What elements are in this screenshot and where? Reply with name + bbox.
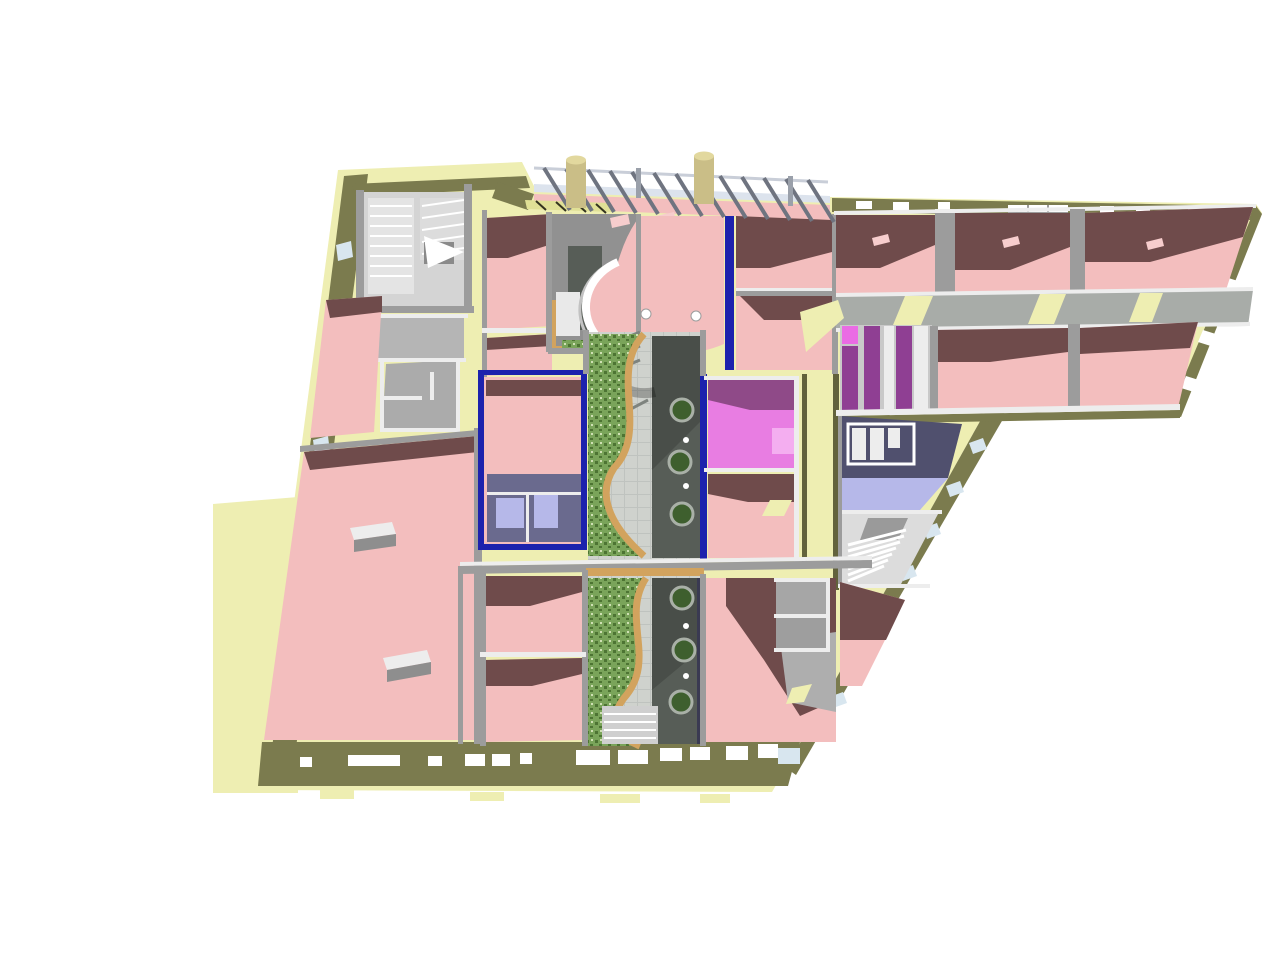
wall xyxy=(458,566,463,744)
wall-top xyxy=(935,209,955,213)
window xyxy=(492,754,510,766)
white-tile-floor xyxy=(556,292,580,336)
wall-top xyxy=(736,288,832,291)
window xyxy=(893,202,909,210)
wall xyxy=(480,570,486,746)
window xyxy=(938,202,950,210)
chimney xyxy=(694,156,714,204)
wall-top xyxy=(456,360,460,430)
floorplan-svg xyxy=(0,0,1280,960)
blue-framed-room-shadow xyxy=(486,380,582,396)
window xyxy=(465,754,485,766)
window xyxy=(690,747,710,760)
window-grid xyxy=(726,746,748,760)
stall-stripe xyxy=(842,346,858,410)
sidewalk-tab xyxy=(700,794,730,803)
round-planter xyxy=(671,587,693,609)
bathroom-partition xyxy=(526,492,529,542)
bathroom-partition xyxy=(487,492,581,495)
blue-wall xyxy=(478,372,484,548)
stall-stripe-bright xyxy=(842,326,858,344)
chimney-top xyxy=(694,152,714,161)
bathroom-fixture xyxy=(534,494,558,528)
wall xyxy=(583,330,589,374)
partition-wall xyxy=(1070,209,1085,293)
magenta-room-light xyxy=(772,428,794,454)
sidewalk-tab xyxy=(470,792,504,801)
blue-wall xyxy=(478,544,586,550)
door-frame xyxy=(552,300,556,348)
window xyxy=(660,748,682,761)
blue-wall-west xyxy=(581,372,587,550)
light-dot xyxy=(683,437,689,443)
small-gray-room xyxy=(776,580,828,614)
partition-wall xyxy=(935,211,955,293)
wall xyxy=(736,291,832,296)
floorplan-rendering xyxy=(0,0,1280,960)
window-grid xyxy=(576,750,610,765)
shelf-unit xyxy=(888,428,900,448)
stall-stripe xyxy=(864,326,880,410)
chimney-top xyxy=(566,156,586,165)
small-gray-room xyxy=(776,618,828,648)
wall xyxy=(582,570,588,746)
stall-stripe xyxy=(896,326,912,410)
round-planter xyxy=(671,503,693,525)
shelf-unit xyxy=(870,428,884,460)
round-planter xyxy=(673,639,695,661)
wall-top xyxy=(482,328,554,333)
window xyxy=(856,201,872,209)
shelf-unit xyxy=(852,428,866,460)
wall-top xyxy=(838,510,942,514)
sidewalk-tab xyxy=(320,790,354,799)
wall xyxy=(636,214,641,334)
partition-wall xyxy=(1068,324,1080,410)
wall-top xyxy=(704,376,798,380)
wall xyxy=(700,574,706,746)
light-dot xyxy=(683,673,689,679)
wall-top xyxy=(774,648,828,652)
lower-courtyard xyxy=(586,568,704,746)
bathroom-fixture xyxy=(496,498,524,528)
stall-divider xyxy=(914,326,928,410)
stall-divider xyxy=(884,326,894,410)
wall-top xyxy=(826,578,830,652)
window xyxy=(300,757,312,767)
wall-top xyxy=(794,376,799,562)
window-grid xyxy=(618,750,648,764)
wall xyxy=(546,212,552,352)
round-table xyxy=(691,311,701,321)
wall-top xyxy=(774,614,828,618)
window xyxy=(348,755,400,766)
wall-top xyxy=(430,372,434,400)
wall xyxy=(482,210,487,378)
chimney xyxy=(566,160,586,208)
round-planter xyxy=(671,399,693,421)
upper-courtyard xyxy=(581,330,707,560)
sidewalk-tab xyxy=(600,794,640,803)
round-table xyxy=(641,309,651,319)
wall xyxy=(464,184,472,308)
window-grid xyxy=(778,748,800,764)
light-dot xyxy=(683,483,689,489)
wall-top xyxy=(704,468,798,472)
corridor-wall xyxy=(802,374,807,564)
wall xyxy=(700,330,706,376)
blue-wall xyxy=(478,370,586,375)
wall-top xyxy=(382,428,460,432)
window-grid xyxy=(758,744,778,758)
partition-wall xyxy=(930,326,938,412)
blue-wall-east xyxy=(700,374,707,560)
window xyxy=(520,753,532,764)
canopy-post xyxy=(636,168,641,198)
blue-wall xyxy=(725,216,734,370)
window xyxy=(428,756,442,766)
round-planter xyxy=(669,451,691,473)
light-dot xyxy=(683,623,689,629)
courtyard-bridge xyxy=(586,568,704,576)
wall-top xyxy=(480,652,586,657)
wall-top xyxy=(382,396,422,400)
wall-top xyxy=(774,578,830,582)
round-planter xyxy=(670,691,692,713)
canopy-post xyxy=(788,176,793,206)
